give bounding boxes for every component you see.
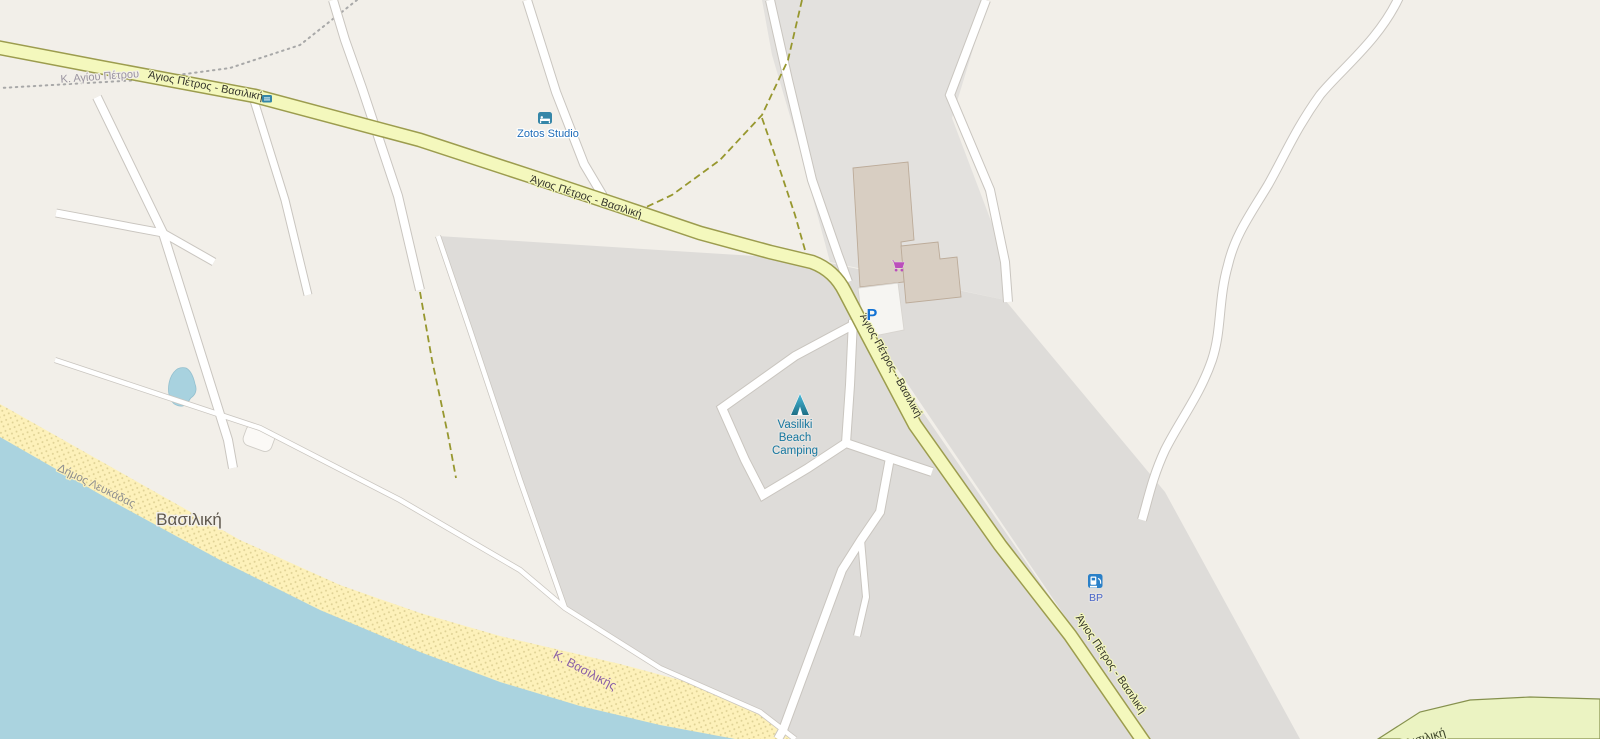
fuel-pump-icon — [1088, 574, 1103, 588]
poi-label-camping-line3[interactable]: Camping — [772, 445, 818, 457]
place-label-vasiliki: Βασιλική — [156, 510, 222, 529]
parking-icon[interactable]: P — [867, 307, 878, 324]
map-canvas: Άγιος Πέτρος - Βασιλική Άγιος Πέτρος - Β… — [0, 0, 1600, 739]
poi-parking[interactable]: P — [867, 307, 878, 324]
poi-label-camping-line1[interactable]: Vasiliki — [778, 419, 813, 431]
poi-label-bp[interactable]: BP — [1089, 592, 1103, 604]
bed-icon — [538, 112, 552, 124]
info-board-icon — [262, 95, 272, 103]
poi-label-zotos[interactable]: Zotos Studio — [517, 128, 579, 140]
map-viewport[interactable]: Άγιος Πέτρος - Βασιλική Άγιος Πέτρος - Β… — [0, 0, 1600, 739]
poi-label-camping-line2[interactable]: Beach — [779, 432, 812, 444]
